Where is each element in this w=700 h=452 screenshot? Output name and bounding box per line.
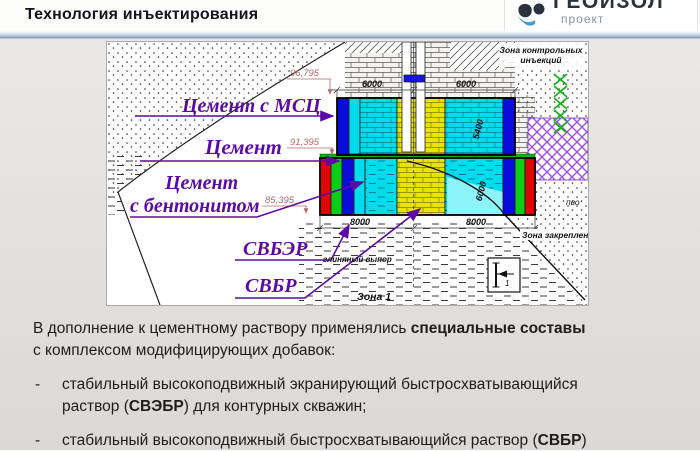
label-cement-bentonite-1: Цемент xyxy=(164,172,238,194)
zone-control-line1: Зона контрольных xyxy=(500,45,584,55)
dim-bottom-left: 8000 xyxy=(350,217,370,227)
body-text: В дополнение к цементному раствору приме… xyxy=(33,314,681,452)
label-svbr: СВБР xyxy=(245,275,297,297)
bullet-marker: - xyxy=(33,374,62,417)
bullet-svebr: - стабильный высокоподвижный экранирующи… xyxy=(33,374,681,417)
injection-block-upper-tier xyxy=(337,98,515,154)
diagram-svg: 6000 6000 8000 8000 5400 6000 96,795 91,… xyxy=(107,42,588,305)
control-injection-hatch xyxy=(528,118,588,180)
elevation-mid: 91,395 xyxy=(290,137,320,148)
label-cement: Цемент xyxy=(204,135,282,159)
dim-top-left: 6000 xyxy=(362,79,382,89)
zone-anchoring: Зона закреплени xyxy=(522,230,588,240)
logo: ГЕОИЗОЛ проект xyxy=(505,0,697,31)
logo-text: ГЕОИЗОЛ проект xyxy=(553,0,664,26)
header: Технология инъектирования ГЕОИЗОЛ проект xyxy=(0,0,700,31)
slide: Технология инъектирования ГЕОИЗОЛ проект xyxy=(0,0,700,450)
zone-pvo: пво xyxy=(566,197,580,207)
header-divider xyxy=(0,31,700,39)
label-svber: СВБЭР xyxy=(243,238,308,260)
bullet-svebr-text: стабильный высокоподвижный экранирующий … xyxy=(62,374,578,417)
section-marker-number: 1 xyxy=(505,279,509,288)
dim-bottom-right: 8000 xyxy=(466,217,486,227)
page-title: Технология инъектирования xyxy=(25,6,258,24)
elevation-low: 85,395 xyxy=(265,195,295,206)
bullet-marker: - xyxy=(33,430,62,452)
dim-top-right: 6000 xyxy=(456,79,476,89)
bullet-svbr: - стабильный высокоподвижный быстросхват… xyxy=(33,430,681,452)
elevation-top: 96,795 xyxy=(290,68,320,79)
label-cement-bentonite-2: с бентонитом xyxy=(130,195,260,217)
logo-subtitle: проект xyxy=(553,12,664,26)
technical-diagram: 6000 6000 8000 8000 5400 6000 96,795 91,… xyxy=(107,42,588,305)
zone-1-label: Зона 1 xyxy=(357,291,391,303)
intro-paragraph: В дополнение к цементному раствору приме… xyxy=(33,318,681,361)
label-cement-mcc: Цемент с МСЦ xyxy=(181,95,322,117)
logo-mark-icon xyxy=(515,2,549,30)
zone-control-line2: инъекций xyxy=(520,55,562,65)
zone-clay: глиняный выпор xyxy=(323,255,392,264)
bullet-svbr-text: стабильный высокоподвижный быстросхватыв… xyxy=(62,430,587,452)
section-marker: 1 xyxy=(488,258,520,292)
